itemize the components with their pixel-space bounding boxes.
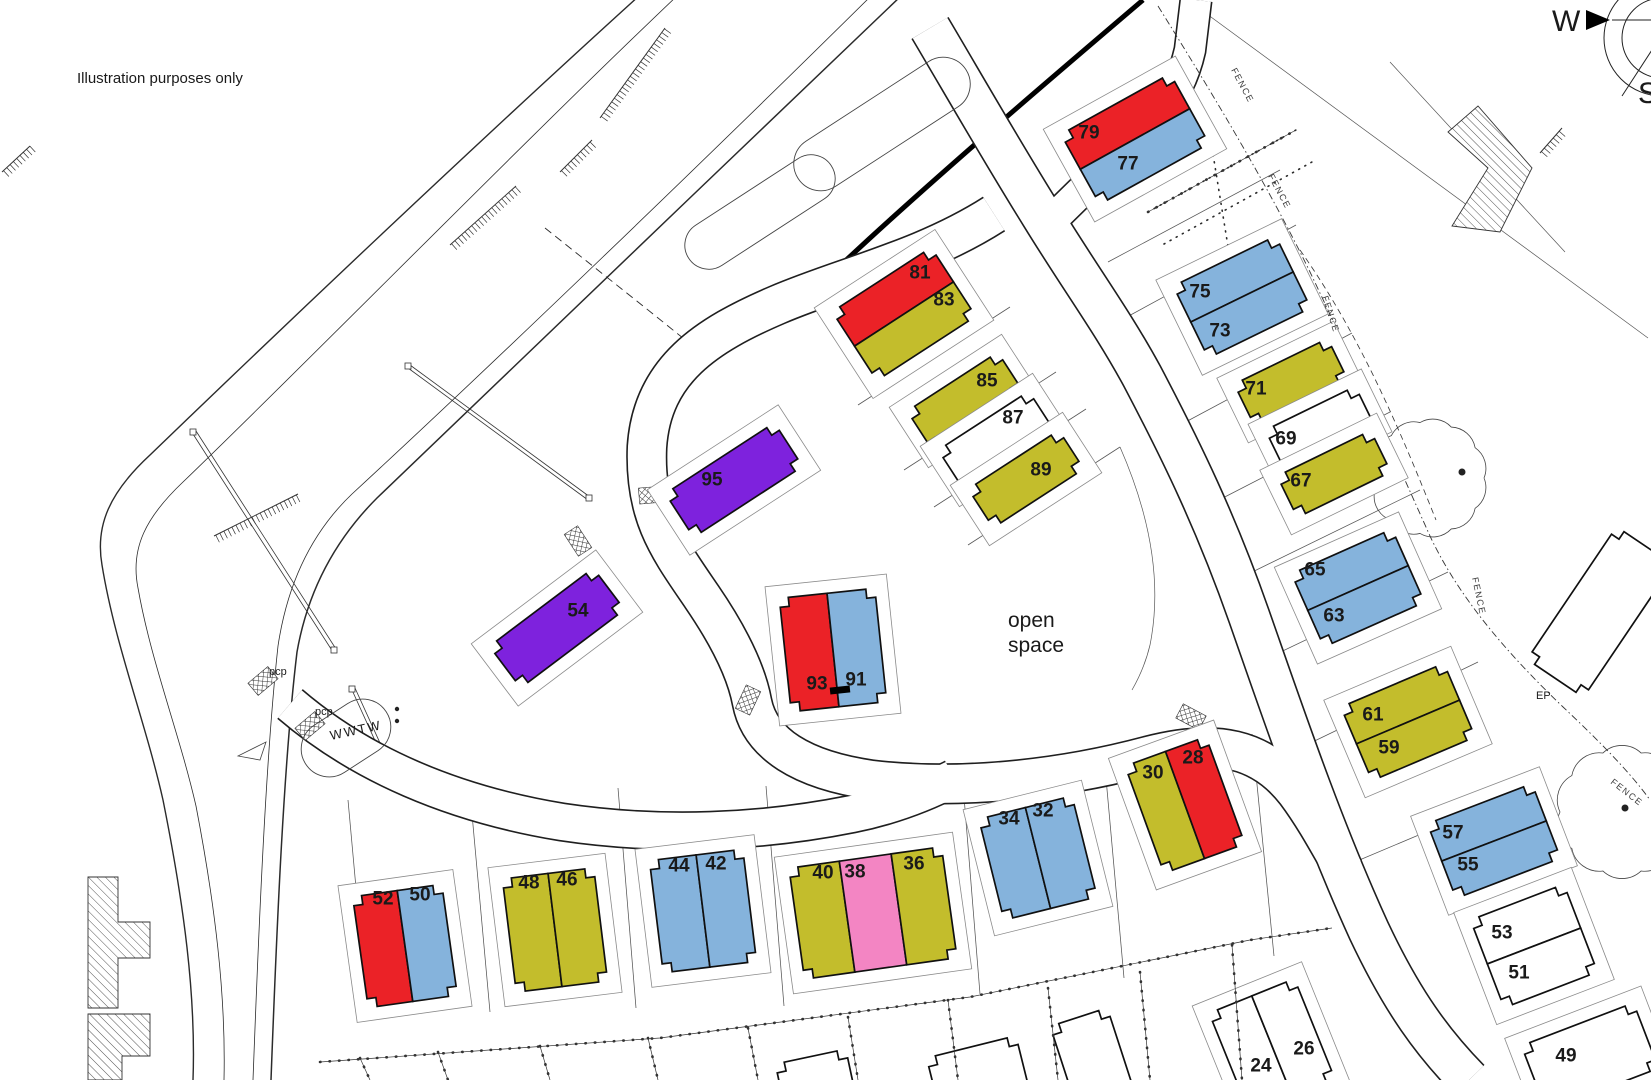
- open-space-label-1: open: [1008, 609, 1055, 632]
- plot-group: [1050, 1008, 1134, 1080]
- open-space-boundary: [1120, 447, 1155, 690]
- compass-inner-circle: [1622, 0, 1651, 78]
- hatched-building-2: [88, 1014, 150, 1080]
- plot-label-93: 93: [806, 674, 827, 695]
- plot-building: [1050, 1008, 1134, 1080]
- fence-label: FENCE: [1266, 172, 1293, 210]
- plot-label-85: 85: [976, 371, 998, 392]
- plot-label-40: 40: [812, 863, 833, 884]
- plot-label-48: 48: [518, 873, 539, 894]
- fence-double-1: [190, 429, 337, 653]
- plot-label-49: 49: [1555, 1046, 1576, 1067]
- plot-label-73: 73: [1209, 321, 1230, 342]
- plot-label-44: 44: [668, 856, 690, 877]
- pedestrian-crossing: [564, 526, 592, 557]
- plot-building: [927, 1036, 1030, 1080]
- plot-label-59: 59: [1378, 738, 1399, 759]
- plot-label-55: 55: [1457, 855, 1479, 876]
- wwtw-dot-2: [395, 719, 399, 723]
- fence-label: FENCE: [1470, 576, 1488, 615]
- plot-group: [927, 1036, 1030, 1080]
- compass-west-pointer: [1586, 10, 1610, 30]
- plot-label-26: 26: [1293, 1039, 1314, 1060]
- hatch-strip: [600, 28, 671, 121]
- fence-label: FENCE: [1609, 777, 1645, 808]
- plot-label-61: 61: [1362, 705, 1384, 726]
- plot-label-54: 54: [567, 601, 589, 622]
- plot-label-77: 77: [1117, 154, 1138, 175]
- plot-label-57: 57: [1442, 823, 1463, 844]
- ep-label: EP: [1536, 690, 1551, 702]
- open-space-label-2: space: [1008, 634, 1064, 657]
- plots-layer: 7977818385878995549391757371696765636159…: [338, 56, 1651, 1080]
- plot-label-52: 52: [372, 889, 393, 910]
- plot-group: [471, 550, 643, 706]
- layby-2: [676, 146, 845, 279]
- beaded-fence: [540, 1046, 550, 1080]
- plot-label-79: 79: [1078, 123, 1099, 144]
- beaded-fence: [648, 1038, 658, 1080]
- plot-group: [488, 853, 622, 1006]
- plot-label-89: 89: [1030, 460, 1051, 481]
- plot-label-65: 65: [1304, 560, 1326, 581]
- plot-building: [775, 1049, 856, 1080]
- plot-group: [1192, 962, 1352, 1080]
- tree-trunk: [1622, 805, 1629, 812]
- site-plan-page: 7977818385878995549391757371696765636159…: [0, 0, 1651, 1080]
- tree-trunk: [1459, 469, 1466, 476]
- beaded-fence: [1140, 972, 1150, 1080]
- compass-west-label: W: [1552, 5, 1581, 38]
- fence-label: FENCE: [1229, 66, 1256, 104]
- plot-label-30: 30: [1142, 763, 1163, 784]
- plot-group: [765, 574, 901, 726]
- traffic-island: [238, 742, 266, 760]
- plot-building: [1527, 527, 1651, 698]
- compass-south-label: S: [1638, 77, 1651, 110]
- wwtw-dot-1: [395, 707, 399, 711]
- plot-label-46: 46: [556, 870, 577, 891]
- beaded-fence: [748, 1028, 758, 1080]
- hatch-strip: [450, 186, 521, 250]
- plot-label-36: 36: [903, 854, 924, 875]
- hatch-strip: [560, 140, 596, 176]
- plot-label-50: 50: [409, 885, 430, 906]
- plot-group: [775, 1049, 856, 1080]
- illustration-note: Illustration purposes only: [77, 70, 243, 87]
- plot-label-53: 53: [1491, 923, 1512, 944]
- plot-label-87: 87: [1002, 408, 1023, 429]
- hatch-strip: [1540, 128, 1565, 157]
- plot-group: [1324, 646, 1492, 797]
- plot-group: [1527, 527, 1651, 698]
- hatch-strip: [2, 146, 35, 177]
- plot-label-75: 75: [1189, 282, 1211, 303]
- plot-label-71: 71: [1245, 379, 1267, 400]
- plot-label-95: 95: [701, 470, 723, 491]
- plot-label-42: 42: [705, 854, 726, 875]
- plot-label-38: 38: [844, 862, 865, 883]
- plot-label-67: 67: [1290, 471, 1311, 492]
- plot-group: [635, 835, 771, 988]
- site-plan-drawing: 7977818385878995549391757371696765636159…: [0, 0, 1651, 1080]
- plot-label-34: 34: [998, 809, 1020, 830]
- plot-group: [1274, 512, 1441, 664]
- hatch-strip: [214, 494, 300, 542]
- compass-rose: W S: [1552, 0, 1651, 110]
- beaded-fence: [438, 1052, 448, 1080]
- beaded-fence: [360, 1058, 370, 1080]
- pcp-label-2: pcp: [315, 706, 333, 718]
- plot-group: [774, 832, 971, 994]
- hatched-building-1: [88, 877, 150, 1008]
- pcp-label-1: pcp: [269, 666, 287, 678]
- plot-label-83: 83: [933, 290, 954, 311]
- plot-label-28: 28: [1182, 748, 1203, 769]
- plot-label-24: 24: [1250, 1056, 1272, 1077]
- plot-label-81: 81: [909, 263, 931, 284]
- hatched-building-3: [1448, 106, 1532, 232]
- plot-label-69: 69: [1275, 429, 1296, 450]
- fence-double-3: [405, 363, 592, 501]
- plot-label-63: 63: [1323, 606, 1344, 627]
- plot-group: [338, 870, 472, 1023]
- plot-label-32: 32: [1032, 801, 1053, 822]
- plot-label-51: 51: [1508, 963, 1530, 984]
